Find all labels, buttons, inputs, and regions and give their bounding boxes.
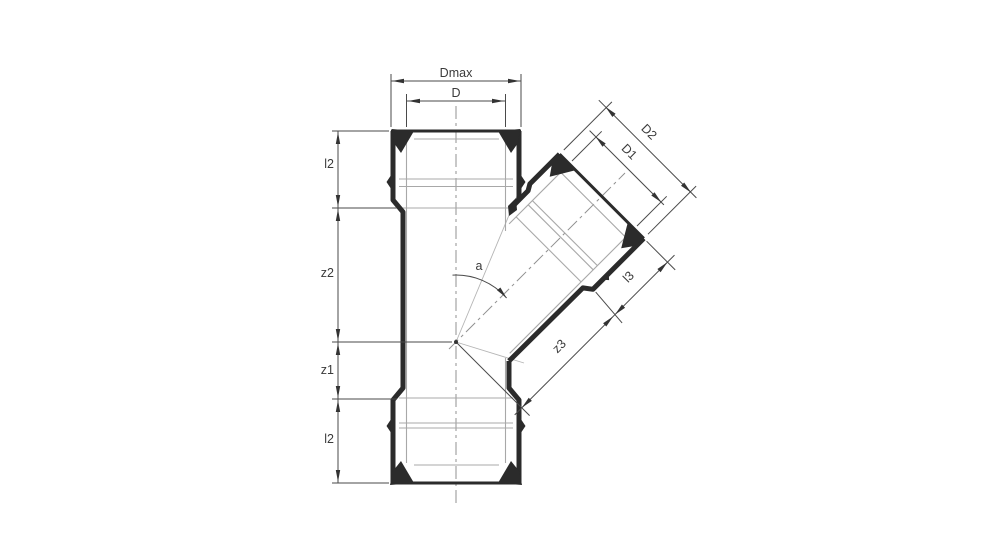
- dim-label-d2: D2: [638, 121, 659, 142]
- d1-ext-lower: [637, 196, 667, 226]
- dim-label-dmax: Dmax: [440, 66, 473, 80]
- dim-label-l3: l3: [620, 269, 637, 286]
- ray-to-upper-branch-root: [456, 196, 517, 342]
- top-socket-right-bump: [522, 176, 526, 188]
- seal-lips: [387, 129, 645, 485]
- centerlines: [449, 106, 625, 504]
- dim-label-l2-top: l2: [324, 157, 334, 171]
- left-wall: [393, 131, 403, 483]
- centre-point: [454, 340, 458, 344]
- branch-lower-wall: [509, 238, 644, 361]
- top-socket-left-bump: [387, 176, 391, 188]
- mouth-ext: [647, 241, 676, 270]
- step-ext: [596, 292, 622, 323]
- main-pipe-outline: [391, 131, 560, 483]
- d2-ext-upper: [564, 102, 612, 150]
- drawing-canvas: Dmax D l2 z2 z1 l2 D2 D1 l3 z3 a: [0, 0, 992, 558]
- bottom-socket-left-bump: [387, 420, 391, 432]
- construction-lines: [456, 196, 524, 363]
- dim-label-z2: z2: [321, 266, 334, 280]
- dim-label-l2-bottom: l2: [324, 432, 334, 446]
- d2-ext-lower: [648, 186, 696, 234]
- technical-drawing: Dmax D l2 z2 z1 l2 D2 D1 l3 z3 a: [0, 0, 992, 558]
- dim-label-d: D: [451, 86, 460, 100]
- dim-label-z3: z3: [550, 337, 569, 356]
- dim-label-d1: D1: [619, 141, 640, 162]
- dim-label-z1: z1: [321, 363, 334, 377]
- d1-ext-upper: [572, 131, 602, 161]
- internal-lines: [399, 139, 633, 465]
- dim-label-angle: a: [476, 259, 483, 273]
- bottom-socket-right-bump: [522, 420, 526, 432]
- dimension-labels: Dmax D l2 z2 z1 l2 D2 D1 l3 z3 a: [321, 66, 660, 446]
- branch-root-fillet: [508, 198, 517, 216]
